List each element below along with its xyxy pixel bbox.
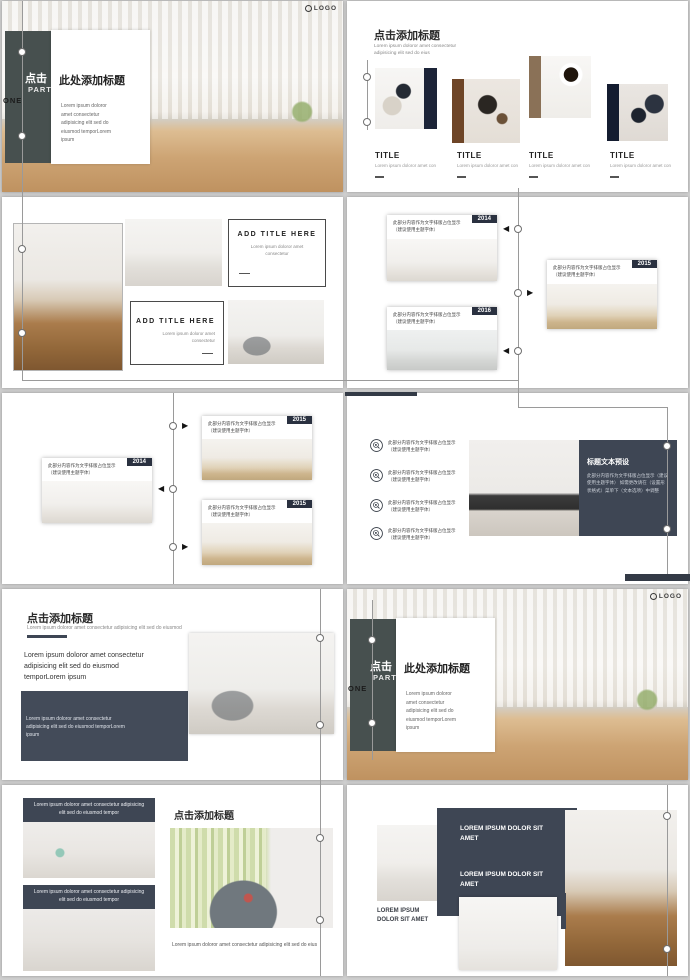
gallery-title-1: TITLE bbox=[375, 151, 400, 160]
slide-1-cover[interactable]: LOGO 点击 PART ONE 此处添加标题 Lorem ipsum dolo… bbox=[2, 1, 343, 192]
placeholder-line2: （建议使用主题字体） bbox=[553, 272, 598, 277]
year-badge: 2016 bbox=[472, 307, 497, 315]
timeline-card-2015: 此部分内容作为文字排版占位显示 （建议使用主题字体） 2015 bbox=[547, 260, 657, 329]
logo-circle-icon bbox=[305, 5, 312, 12]
timeline-card-photo bbox=[387, 330, 497, 370]
placeholder-line2: （建议使用主题字体） bbox=[393, 319, 438, 324]
gallery-desc-3: Lorem ipsum doloror amet con bbox=[529, 163, 590, 168]
slide3-box1-title: ADD TITLE HERE bbox=[229, 231, 325, 238]
timeline-card-2014: 此部分内容作为文字排版占位显示 （建议使用主题字体） 2014 bbox=[42, 458, 152, 523]
placeholder-line2: （建议使用主题字体） bbox=[208, 428, 253, 433]
slide9-card2-photo bbox=[23, 909, 155, 971]
gallery-desc-2: Lorem ipsum doloror amet con bbox=[457, 163, 518, 168]
gallery-bar-1 bbox=[424, 68, 437, 129]
cover-body-text: Lorem ipsum doloror amet consectetur adi… bbox=[61, 102, 116, 145]
placeholder-line2: （建议使用主题字体） bbox=[388, 477, 433, 482]
placeholder-line2: （建议使用主题字体） bbox=[48, 470, 93, 475]
year-badge: 2015 bbox=[632, 260, 657, 268]
slide-9-two-cards[interactable]: Lorem ipsum doloror amet consectetur adi… bbox=[2, 785, 343, 976]
feature-item-3: 此部分内容作为文字排版占位显示 （建议使用主题字体） bbox=[388, 500, 476, 514]
slide3-box2-body: Lorem ipsum doloror amet consectetur bbox=[151, 331, 215, 345]
slide3-photo-large bbox=[13, 223, 123, 371]
target-search-icon bbox=[370, 527, 383, 540]
slide-6-feature-list[interactable]: 此部分内容作为文字排版占位显示 （建议使用主题字体） 此部分内容作为文字排版占位… bbox=[347, 393, 688, 584]
slide9-card2-header: Lorem ipsum doloror amet consectetur adi… bbox=[23, 885, 155, 909]
slide6-panel-photo bbox=[469, 440, 579, 536]
gallery-photo-2 bbox=[464, 79, 520, 143]
gallery-dash-1 bbox=[375, 176, 384, 178]
slide7-panel-text: Lorem ipsum doloror amet consectetur adi… bbox=[26, 715, 131, 739]
year-badge: 2014 bbox=[127, 458, 152, 466]
slide2-subtitle: Lorem ipsum doloror amet consectetur adi… bbox=[374, 43, 466, 57]
slide9-title: 点击添加标题 bbox=[174, 807, 234, 822]
gallery-dash-3 bbox=[529, 176, 538, 178]
placeholder-line2: （建议使用主题字体） bbox=[388, 507, 433, 512]
year-badge: 2015 bbox=[287, 500, 312, 508]
timeline-card-2016: 此部分内容作为文字排版占位显示 （建议使用主题字体） 2016 bbox=[387, 307, 497, 370]
feature-item-1: 此部分内容作为文字排版占位显示 （建议使用主题字体） bbox=[388, 440, 476, 454]
gallery-desc-1: Lorem ipsum doloror amet con bbox=[375, 163, 436, 168]
slide3-box2-dash bbox=[202, 353, 213, 355]
slide7-title: 点击添加标题 bbox=[27, 610, 93, 626]
placeholder-line2: （建议使用主题字体） bbox=[388, 447, 433, 452]
slide9-card1-header: Lorem ipsum doloror amet consectetur adi… bbox=[23, 798, 155, 822]
slide6-panel-body: 此部分内容作为文字排版占位显示（建议使用主题字体） 如需更改请在（设置形状格式）… bbox=[587, 472, 669, 494]
slide10-panel-label-1: LOREM IPSUM DOLOR SIT AMET bbox=[460, 824, 546, 844]
placeholder-line1: 此部分内容作为文字排版占位显示 bbox=[208, 505, 276, 510]
cover-title: 此处添加标题 bbox=[59, 72, 125, 88]
placeholder-line1: 此部分内容作为文字排版占位显示 bbox=[388, 500, 456, 505]
timeline-card-photo bbox=[387, 239, 497, 281]
gallery-title-3: TITLE bbox=[529, 151, 554, 160]
slide10-accent-bar bbox=[561, 893, 566, 929]
cover-title: 此处添加标题 bbox=[404, 660, 470, 676]
slide9-card2-text: Lorem ipsum doloror amet consectetur adi… bbox=[31, 889, 147, 904]
placeholder-line1: 此部分内容作为文字排版占位显示 bbox=[393, 312, 461, 317]
gallery-dash-4 bbox=[610, 176, 619, 178]
timeline-card-2015b: 此部分内容作为文字排版占位显示 （建议使用主题字体） 2015 bbox=[202, 500, 312, 565]
slide3-photo-top bbox=[125, 219, 222, 286]
gallery-photo-3 bbox=[541, 56, 591, 118]
slide9-card1-photo bbox=[23, 822, 155, 878]
slide3-box1-dash bbox=[239, 273, 250, 275]
cover-one-label: ONE bbox=[348, 684, 367, 693]
placeholder-line1: 此部分内容作为文字排版占位显示 bbox=[388, 470, 456, 475]
slide7-body: Lorem ipsum doloror amet consectetur adi… bbox=[24, 651, 162, 684]
slide9-photo bbox=[170, 828, 333, 928]
slide3-box1-body: Lorem ipsum doloror amet consectetur bbox=[239, 244, 315, 258]
slide3-box-2: ADD TITLE HERE Lorem ipsum doloror amet … bbox=[130, 301, 224, 365]
timeline-card-photo bbox=[202, 523, 312, 565]
placeholder-line1: 此部分内容作为文字排版占位显示 bbox=[553, 265, 621, 270]
slide10-left-label: LOREM IPSUM DOLOR SIT AMET bbox=[377, 907, 431, 925]
slide6-dark-panel: 标题文本预设 此部分内容作为文字排版占位显示（建议使用主题字体） 如需更改请在（… bbox=[469, 440, 677, 536]
timeline-card-photo bbox=[547, 284, 657, 329]
slide-8-cover[interactable]: LOGO 点击 PART ONE 此处添加标题 Lorem ipsum dolo… bbox=[347, 589, 688, 780]
slide-7-intro[interactable]: 点击添加标题 Lorem ipsum doloror amet consecte… bbox=[2, 589, 343, 780]
logo-circle-icon bbox=[650, 593, 657, 600]
timeline-card-2015a: 此部分内容作为文字排版占位显示 （建议使用主题字体） 2015 bbox=[202, 416, 312, 480]
timeline-card-2014: 此部分内容作为文字排版占位显示 （建议使用主题字体） 2014 bbox=[387, 215, 497, 281]
gallery-bar-3 bbox=[529, 56, 541, 118]
gallery-dash-2 bbox=[457, 176, 466, 178]
slide-5-timeline[interactable]: 此部分内容作为文字排版占位显示 （建议使用主题字体） 2015 此部分内容作为文… bbox=[2, 393, 343, 584]
cover-body-text: Lorem ipsum doloror amet consectetur adi… bbox=[406, 690, 461, 733]
target-search-icon bbox=[370, 439, 383, 452]
feature-item-4: 此部分内容作为文字排版占位显示 （建议使用主题字体） bbox=[388, 528, 476, 542]
logo-text: LOGO bbox=[314, 5, 337, 12]
cover-one-label: ONE bbox=[3, 96, 22, 105]
target-search-icon bbox=[370, 469, 383, 482]
slide3-box-1: ADD TITLE HERE Lorem ipsum doloror amet … bbox=[228, 219, 326, 287]
slide-3-photo-grid[interactable]: ADD TITLE HERE Lorem ipsum doloror amet … bbox=[2, 197, 343, 388]
placeholder-line2: （建议使用主题字体） bbox=[388, 535, 433, 540]
gallery-title-4: TITLE bbox=[610, 151, 635, 160]
slide3-box2-title: ADD TITLE HERE bbox=[131, 318, 215, 325]
slide3-photo-bottom bbox=[228, 300, 324, 364]
year-badge: 2015 bbox=[287, 416, 312, 424]
placeholder-line1: 此部分内容作为文字排版占位显示 bbox=[208, 421, 276, 426]
placeholder-line1: 此部分内容作为文字排版占位显示 bbox=[388, 528, 456, 533]
slide7-subtitle: Lorem ipsum doloror amet consectetur adi… bbox=[27, 625, 187, 631]
slide2-title: 点击添加标题 bbox=[374, 27, 440, 43]
slide-2-gallery[interactable]: 点击添加标题 Lorem ipsum doloror amet consecte… bbox=[347, 1, 688, 192]
slide10-photo-middle bbox=[459, 897, 557, 970]
slide7-rule bbox=[27, 635, 67, 638]
slide6-panel-title: 标题文本预设 bbox=[587, 457, 629, 467]
logo-text: LOGO bbox=[659, 593, 682, 600]
slide-10-collage[interactable]: LOREM IPSUM DOLOR SIT AMET LOREM IPSUM D… bbox=[347, 785, 688, 976]
slide9-caption: Lorem ipsum doloror amet consectetur adi… bbox=[172, 941, 324, 949]
slide10-photo-right bbox=[565, 810, 677, 966]
timeline-card-photo bbox=[202, 439, 312, 480]
placeholder-line1: 此部分内容作为文字排版占位显示 bbox=[388, 440, 456, 445]
target-search-icon bbox=[370, 499, 383, 512]
gallery-photo-4 bbox=[619, 84, 668, 141]
slide-4-timeline[interactable]: 此部分内容作为文字排版占位显示 （建议使用主题字体） 2014 此部分内容作为文… bbox=[347, 197, 688, 388]
year-badge: 2014 bbox=[472, 215, 497, 223]
cover-part-label: PART bbox=[373, 673, 397, 682]
slide9-card1-text: Lorem ipsum doloror amet consectetur adi… bbox=[31, 802, 147, 817]
timeline-card-photo bbox=[42, 481, 152, 523]
slide10-panel-label-2: LOREM IPSUM DOLOR SIT AMET bbox=[460, 870, 546, 890]
placeholder-line2: （建议使用主题字体） bbox=[393, 227, 438, 232]
logo: LOGO bbox=[650, 593, 682, 600]
cover-part-label: PART bbox=[28, 85, 52, 94]
logo: LOGO bbox=[305, 5, 337, 12]
gallery-bar-2 bbox=[452, 79, 464, 143]
placeholder-line1: 此部分内容作为文字排版占位显示 bbox=[48, 463, 116, 468]
feature-item-2: 此部分内容作为文字排版占位显示 （建议使用主题字体） bbox=[388, 470, 476, 484]
placeholder-line1: 此部分内容作为文字排版占位显示 bbox=[393, 220, 461, 225]
gallery-bar-4 bbox=[607, 84, 619, 141]
cover-click-label: 点击 bbox=[25, 70, 47, 86]
gallery-photo-1 bbox=[375, 68, 424, 129]
gallery-desc-4: Lorem ipsum doloror amet con bbox=[610, 163, 671, 168]
cover-click-label: 点击 bbox=[370, 658, 392, 674]
gallery-title-2: TITLE bbox=[457, 151, 482, 160]
placeholder-line2: （建议使用主题字体） bbox=[208, 512, 253, 517]
slide7-photo bbox=[189, 633, 334, 734]
